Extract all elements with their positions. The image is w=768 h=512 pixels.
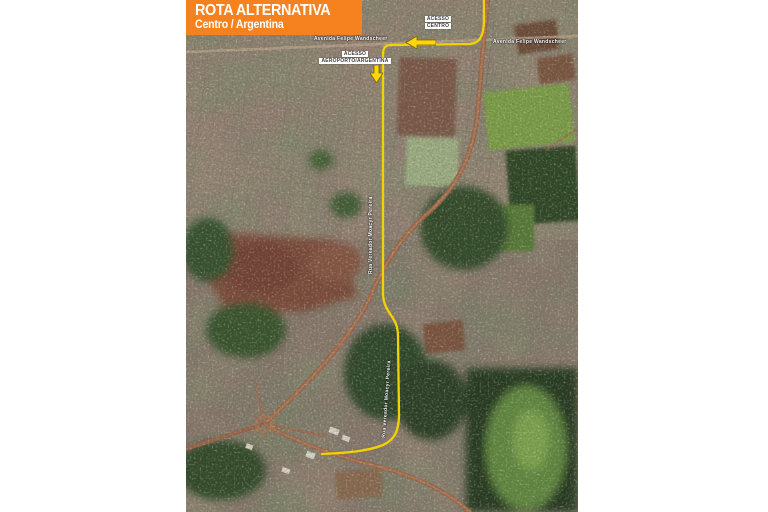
arrow-down-icon [370,65,383,83]
banner-title: ROTA ALTERNATIVA [195,2,345,19]
street-label-top-right: Avenida Felipe Wandscheer [493,39,567,45]
label-acesso-centro: ACESSO CENTRO [414,16,462,29]
label-acesso-aeroporto: ACESSO AEROPORTO/ARGENTINA [326,51,384,64]
street-label-top-left: Avenida Felipe Wandscheer [314,36,388,42]
arrow-left-icon [406,36,436,49]
banner-subtitle: Centro / Argentina [195,19,349,31]
label-acesso-centro-line1: ACESSO [425,16,451,22]
label-acesso-aeroporto-line2: AEROPORTO/ARGENTINA [319,58,390,64]
route-banner: ROTA ALTERNATIVA Centro / Argentina [186,0,362,35]
route-line [322,0,484,454]
page: ROTA ALTERNATIVA Centro / Argentina ACES… [0,0,768,512]
label-acesso-centro-line2: CENTRO [425,23,451,29]
street-label-mid-vertical: Rua Vereador Moacyr Pereira [368,196,374,274]
label-acesso-aeroporto-line1: ACESSO [342,51,368,57]
satellite-map-image: ROTA ALTERNATIVA Centro / Argentina ACES… [186,0,578,512]
